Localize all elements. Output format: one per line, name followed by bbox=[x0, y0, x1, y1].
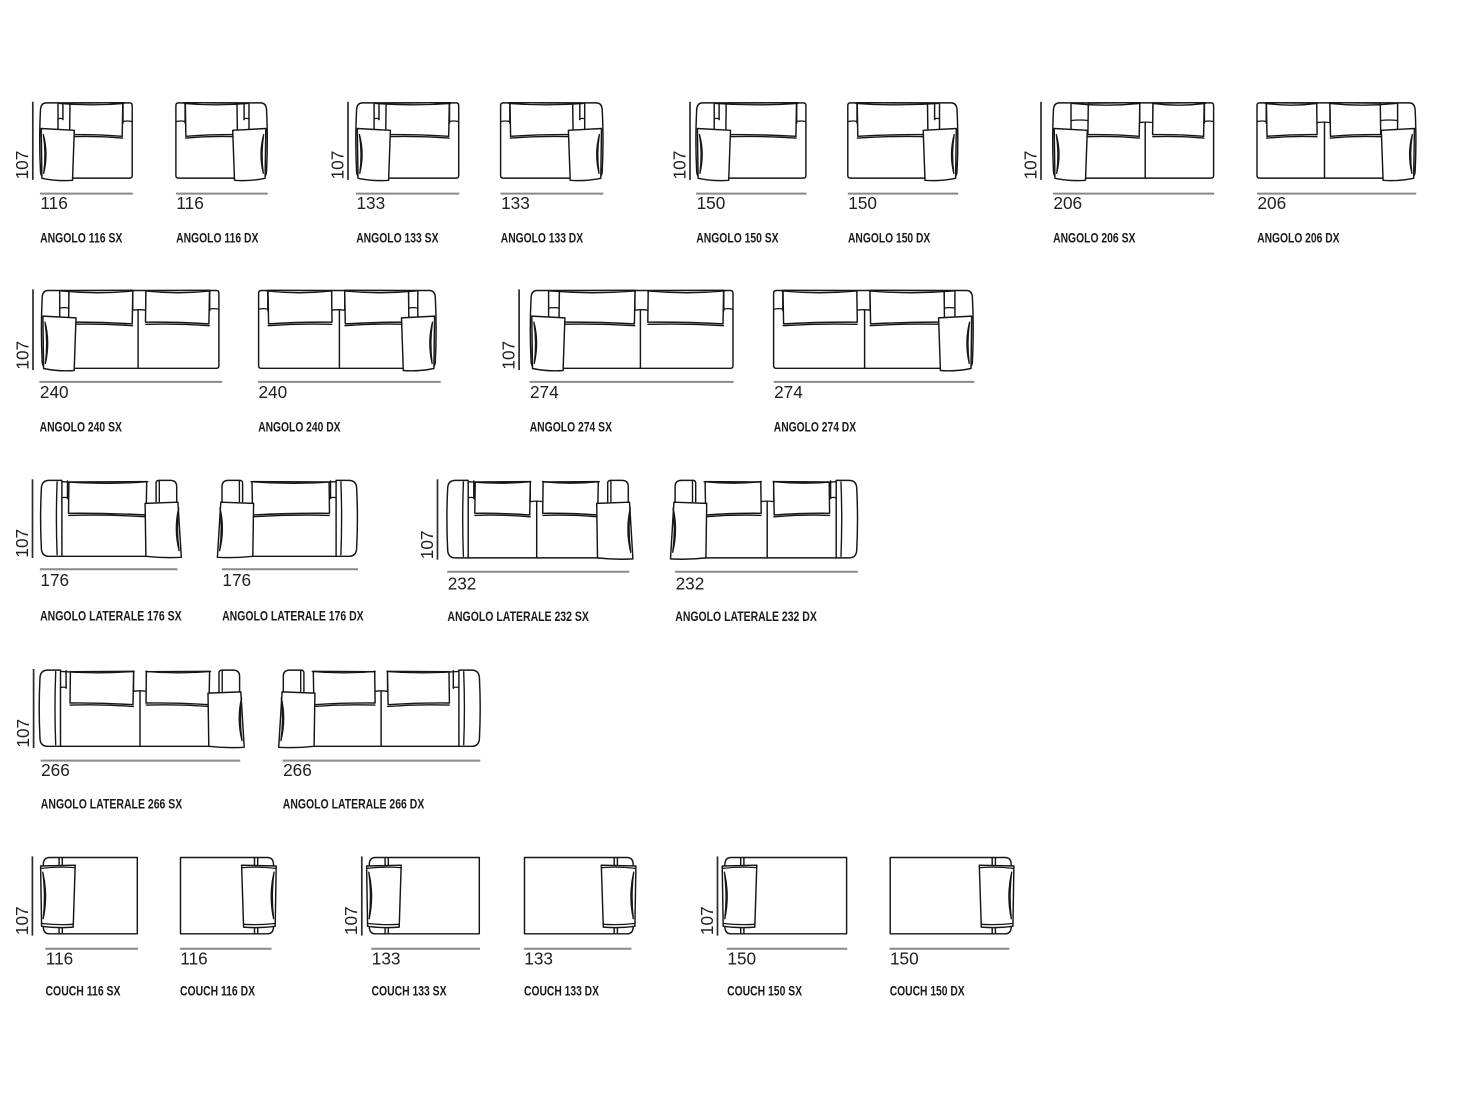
svg-text:ANGOLO 150 SX: ANGOLO 150 SX bbox=[696, 231, 779, 246]
svg-text:274: 274 bbox=[774, 382, 803, 402]
svg-text:266: 266 bbox=[283, 760, 312, 780]
svg-text:107: 107 bbox=[499, 341, 519, 370]
svg-text:ANGOLO LATERALE 232 SX: ANGOLO LATERALE 232 SX bbox=[447, 609, 589, 624]
svg-text:206: 206 bbox=[1258, 193, 1287, 213]
svg-text:ANGOLO 133 DX: ANGOLO 133 DX bbox=[501, 231, 584, 246]
svg-text:ANGOLO 240 DX: ANGOLO 240 DX bbox=[258, 420, 341, 435]
svg-text:COUCH 116 SX: COUCH 116 SX bbox=[46, 983, 122, 998]
svg-text:ANGOLO 133 SX: ANGOLO 133 SX bbox=[356, 231, 439, 246]
svg-text:107: 107 bbox=[669, 151, 689, 180]
svg-text:COUCH 116 DX: COUCH 116 DX bbox=[180, 983, 256, 998]
svg-text:240: 240 bbox=[40, 382, 69, 402]
svg-text:116: 116 bbox=[180, 948, 207, 968]
svg-text:133: 133 bbox=[357, 193, 386, 213]
svg-text:107: 107 bbox=[341, 906, 361, 935]
svg-text:107: 107 bbox=[13, 719, 33, 748]
svg-text:ANGOLO LATERALE 176 SX: ANGOLO LATERALE 176 SX bbox=[40, 609, 182, 624]
svg-text:107: 107 bbox=[12, 151, 32, 180]
svg-text:ANGOLO 274 SX: ANGOLO 274 SX bbox=[530, 420, 613, 435]
svg-text:116: 116 bbox=[46, 948, 73, 968]
svg-text:274: 274 bbox=[530, 382, 559, 402]
svg-text:COUCH 133 DX: COUCH 133 DX bbox=[524, 983, 600, 998]
svg-text:COUCH 150 DX: COUCH 150 DX bbox=[890, 983, 966, 998]
svg-text:107: 107 bbox=[12, 906, 32, 935]
svg-text:ANGOLO 240 SX: ANGOLO 240 SX bbox=[40, 420, 123, 435]
svg-text:240: 240 bbox=[259, 382, 288, 402]
svg-text:ANGOLO 274 DX: ANGOLO 274 DX bbox=[774, 420, 857, 435]
svg-text:150: 150 bbox=[890, 948, 919, 968]
svg-text:COUCH 150 SX: COUCH 150 SX bbox=[727, 983, 803, 998]
svg-text:133: 133 bbox=[501, 193, 530, 213]
svg-text:COUCH 133 SX: COUCH 133 SX bbox=[372, 983, 448, 998]
svg-text:232: 232 bbox=[448, 573, 477, 593]
svg-text:206: 206 bbox=[1053, 193, 1082, 213]
svg-text:266: 266 bbox=[41, 760, 70, 780]
svg-text:107: 107 bbox=[417, 531, 437, 560]
svg-text:107: 107 bbox=[12, 529, 32, 558]
svg-text:176: 176 bbox=[40, 570, 69, 590]
svg-text:ANGOLO 206 DX: ANGOLO 206 DX bbox=[1257, 231, 1340, 246]
svg-text:107: 107 bbox=[327, 151, 347, 180]
svg-text:ANGOLO 150 DX: ANGOLO 150 DX bbox=[848, 231, 931, 246]
svg-text:ANGOLO 116 SX: ANGOLO 116 SX bbox=[40, 231, 123, 246]
svg-text:150: 150 bbox=[848, 193, 877, 213]
svg-text:ANGOLO 206 SX: ANGOLO 206 SX bbox=[1053, 231, 1136, 246]
svg-text:ANGOLO LATERALE 266 DX: ANGOLO LATERALE 266 DX bbox=[283, 796, 425, 811]
svg-text:133: 133 bbox=[372, 948, 401, 968]
svg-text:176: 176 bbox=[222, 570, 251, 590]
svg-text:ANGOLO LATERALE 176 DX: ANGOLO LATERALE 176 DX bbox=[222, 609, 364, 624]
svg-text:107: 107 bbox=[697, 906, 717, 935]
svg-text:116: 116 bbox=[40, 193, 67, 213]
svg-text:107: 107 bbox=[1020, 151, 1040, 180]
svg-text:232: 232 bbox=[676, 573, 705, 593]
svg-text:133: 133 bbox=[524, 948, 553, 968]
svg-text:ANGOLO 116 DX: ANGOLO 116 DX bbox=[176, 231, 259, 246]
svg-text:150: 150 bbox=[727, 948, 756, 968]
svg-text:ANGOLO LATERALE 232 DX: ANGOLO LATERALE 232 DX bbox=[675, 609, 817, 624]
svg-text:150: 150 bbox=[697, 193, 726, 213]
svg-text:116: 116 bbox=[176, 193, 203, 213]
svg-text:107: 107 bbox=[12, 341, 32, 370]
svg-text:ANGOLO LATERALE 266 SX: ANGOLO LATERALE 266 SX bbox=[41, 796, 183, 811]
